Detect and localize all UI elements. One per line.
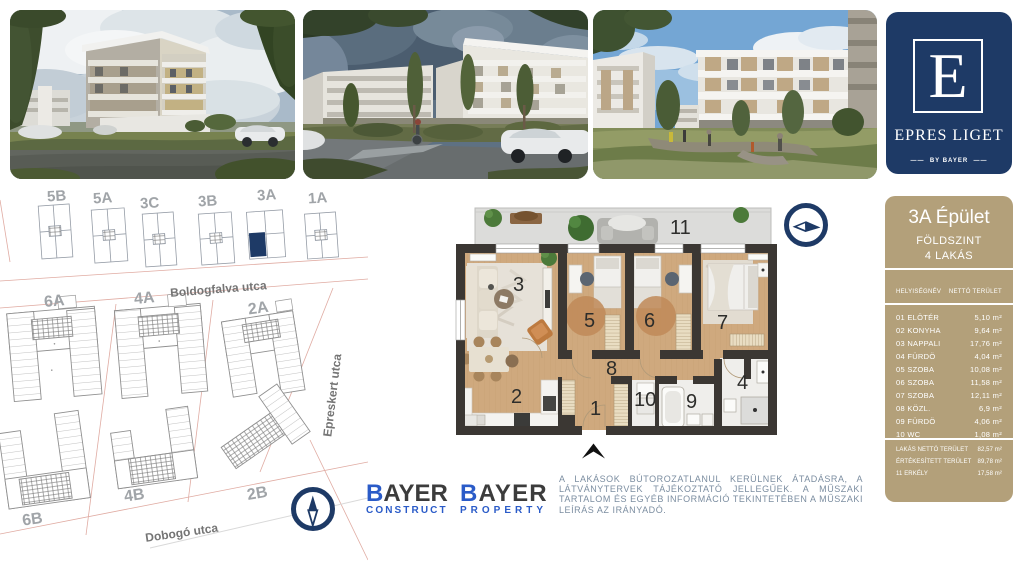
svg-text:2B: 2B — [246, 484, 269, 504]
svg-text:2: 2 — [511, 386, 522, 408]
svg-text:1A: 1A — [307, 189, 327, 207]
svg-text:5: 5 — [584, 310, 595, 332]
svg-text:4B: 4B — [123, 486, 146, 506]
svg-text:11: 11 — [670, 217, 691, 239]
svg-text:3B: 3B — [197, 192, 217, 210]
svg-text:6A: 6A — [43, 292, 65, 311]
svg-text:3C: 3C — [139, 194, 159, 212]
svg-text:Boldogfalva utca: Boldogfalva utca — [170, 278, 268, 300]
svg-text:5B: 5B — [46, 187, 66, 205]
svg-text:4A: 4A — [133, 289, 155, 308]
svg-text:Epreskert utca: Epreskert utca — [320, 353, 344, 438]
svg-text:5A: 5A — [92, 189, 112, 207]
svg-text:1: 1 — [590, 398, 601, 420]
svg-text:2A: 2A — [247, 299, 270, 319]
svg-text:9: 9 — [686, 391, 697, 413]
svg-text:4: 4 — [737, 372, 748, 394]
svg-text:3: 3 — [513, 274, 524, 296]
svg-text:7: 7 — [717, 312, 728, 334]
svg-text:10: 10 — [634, 389, 656, 411]
svg-text:3A: 3A — [256, 186, 276, 204]
svg-text:6B: 6B — [21, 510, 44, 530]
svg-text:8: 8 — [606, 358, 617, 380]
svg-text:6: 6 — [644, 310, 655, 332]
